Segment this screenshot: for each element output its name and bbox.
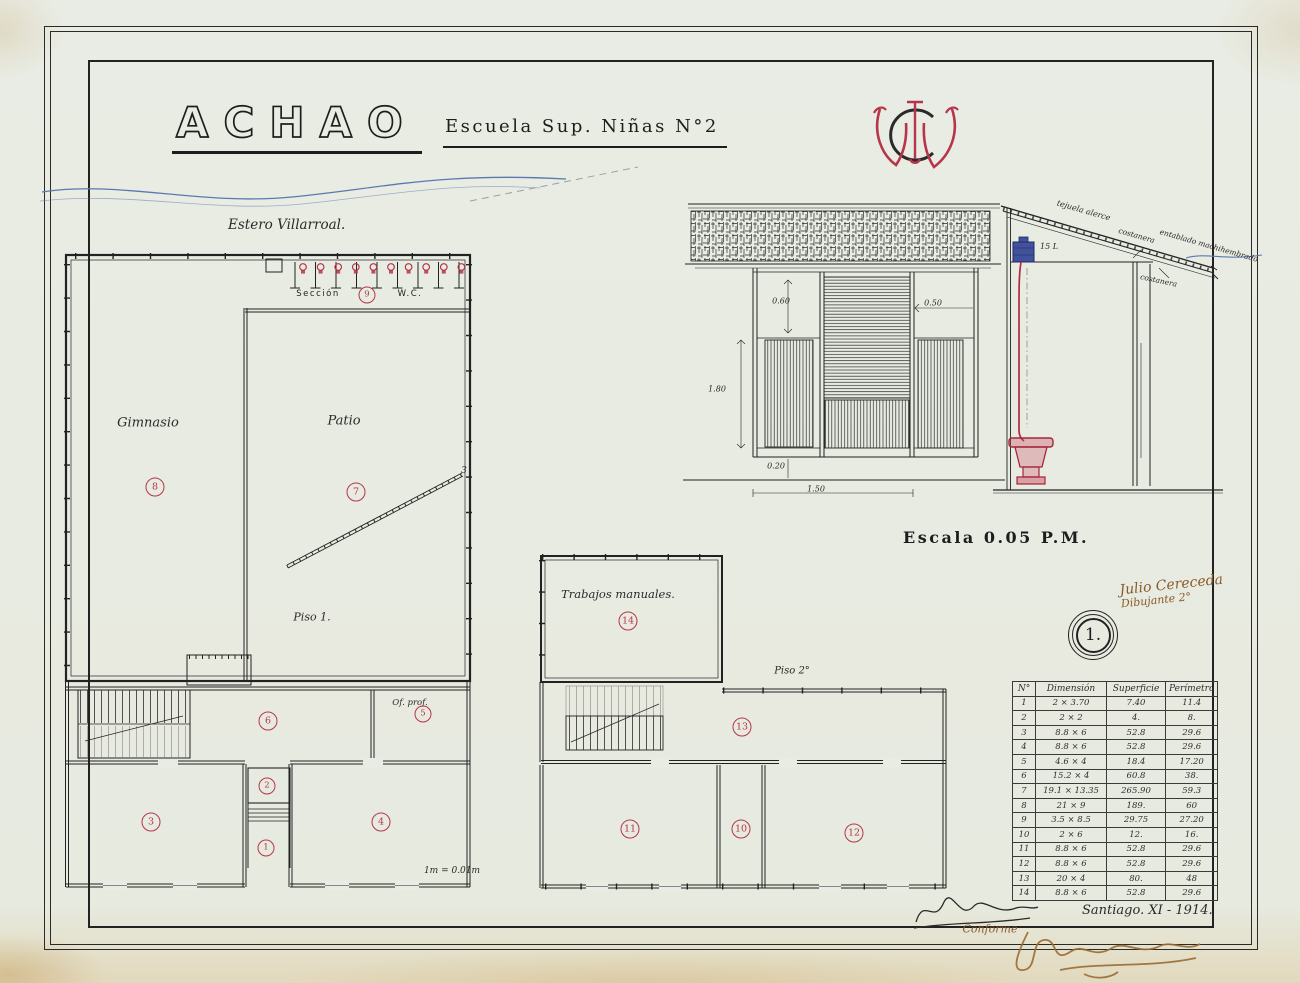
river-label: Estero Villarroal. (228, 217, 345, 233)
table-cell: 12 (1013, 857, 1036, 872)
table-cell: 15.2 × 4 (1036, 769, 1107, 784)
table-row: 148.8 × 652.829.6 (1013, 886, 1218, 901)
table-cell: 8.8 × 6 (1036, 725, 1107, 740)
table-cell: 38. (1166, 769, 1218, 784)
room-number-vestibule: 2 (259, 778, 276, 795)
table-cell: 12. (1107, 827, 1166, 842)
table-header-row: N°DimensiónSuperficiePerímetro (1013, 682, 1218, 697)
wc-section-label: Sección (296, 289, 339, 299)
table-cell: 6 (1013, 769, 1036, 784)
table-cell: 59.3 (1166, 784, 1218, 799)
table-cell: 8 (1013, 798, 1036, 813)
elev-dim-060: 0.60 (772, 297, 790, 306)
room-label-patio: Patio (327, 414, 360, 429)
scale-label: Escala 0.05 P.M. (903, 528, 1089, 547)
wc-monogram-icon (860, 93, 972, 185)
table-cell: 52.8 (1107, 857, 1166, 872)
table-cell: 19.1 × 13.35 (1036, 784, 1107, 799)
table-cell: 52.8 (1107, 842, 1166, 857)
table-cell: 2 × 6 (1036, 827, 1107, 842)
elev-dim-150: 1.50 (807, 485, 825, 494)
section-label-tank: 15 L (1040, 242, 1058, 251)
table-row: 102 × 612.16. (1013, 827, 1218, 842)
table-cell: 8.8 × 6 (1036, 740, 1107, 755)
table-cell: 52.8 (1107, 740, 1166, 755)
room-number-office: 5 (415, 706, 432, 723)
table-cell: 2 (1013, 711, 1036, 726)
floor1-label: Piso 1. (293, 611, 330, 624)
table-cell: 60.8 (1107, 769, 1166, 784)
table-header-cell: Superficie (1107, 682, 1166, 697)
table-row: 93.5 × 8.529.7527.20 (1013, 813, 1218, 828)
table-cell: 11 (1013, 842, 1036, 857)
table-cell: 9 (1013, 813, 1036, 828)
table-row: 54.6 × 418.417.20 (1013, 754, 1218, 769)
elev-dim-050: 0.50 (924, 299, 942, 308)
room-number-gimnasio: 8 (146, 478, 165, 497)
table-cell: 8.8 × 6 (1036, 857, 1107, 872)
room-number-corridor2: 13 (733, 718, 752, 737)
table-cell: 29.6 (1166, 886, 1218, 901)
table-cell: 7.40 (1107, 696, 1166, 711)
plan1-drawing (63, 246, 475, 898)
table-row: 821 × 9189.60 (1013, 798, 1218, 813)
table-row: 719.1 × 13.35265.9059.3 (1013, 784, 1218, 799)
table-cell: 4 (1013, 740, 1036, 755)
room-number-wc: 9 (359, 287, 376, 304)
elev-dim-180: 1.80 (708, 385, 726, 394)
table-cell: 7 (1013, 784, 1036, 799)
table-cell: 29.6 (1166, 842, 1218, 857)
table-row: 118.8 × 652.829.6 (1013, 842, 1218, 857)
table-cell: 4.6 × 4 (1036, 754, 1107, 769)
sheet-number-badge: 1. (1068, 610, 1118, 660)
table-cell: 29.6 (1166, 857, 1218, 872)
table-cell: 8. (1166, 711, 1218, 726)
table-cell: 1 (1013, 696, 1036, 711)
toilet-icons (300, 264, 465, 274)
table-row: 615.2 × 460.838. (1013, 769, 1218, 784)
table-cell: 189. (1107, 798, 1166, 813)
signature-sepia (1000, 912, 1210, 982)
table-cell: 27.20 (1166, 813, 1218, 828)
table-cell: 29.75 (1107, 813, 1166, 828)
table-row: 22 × 24.8. (1013, 711, 1218, 726)
table-cell: 8.8 × 6 (1036, 842, 1107, 857)
room-number-manual-works: 14 (619, 612, 638, 631)
table-cell: 21 × 9 (1036, 798, 1107, 813)
table-cell: 13 (1013, 871, 1036, 886)
area-table: N°DimensiónSuperficiePerímetro 12 × 3.70… (1012, 681, 1218, 901)
wc-label: W.C. (398, 289, 423, 299)
toilet-section-icon (1009, 438, 1053, 484)
room-number-11: 11 (621, 820, 640, 839)
table-row: 48.8 × 652.829.6 (1013, 740, 1218, 755)
table-cell: 11.4 (1166, 696, 1218, 711)
table-cell: 10 (1013, 827, 1036, 842)
table-cell: 2 × 2 (1036, 711, 1107, 726)
table-cell: 3.5 × 8.5 (1036, 813, 1107, 828)
room-number-corridor1: 6 (259, 712, 278, 731)
sheet-subtitle: Escuela Sup. Niñas N°2 (443, 116, 727, 148)
table-cell: 48 (1166, 871, 1218, 886)
room-number-entrance: 1 (258, 840, 275, 857)
sheet-number: 1. (1076, 618, 1111, 653)
table-cell: 29.6 (1166, 740, 1218, 755)
floor2-label: Piso 2° (774, 666, 810, 677)
table-cell: 18.4 (1107, 754, 1166, 769)
table-cell: 17.20 (1166, 754, 1218, 769)
table-header-cell: Dimensión (1036, 682, 1107, 697)
blueprint-sheet: ACHAO Escuela Sup. Niñas N°2 Estero Vill… (0, 0, 1300, 983)
room-label-gimnasio: Gimnasio (117, 416, 179, 431)
table-cell: 20 × 4 (1036, 871, 1107, 886)
table-cell: 16. (1166, 827, 1218, 842)
table-header-cell: N° (1013, 682, 1036, 697)
table-cell: 8.8 × 6 (1036, 886, 1107, 901)
table-cell: 4. (1107, 711, 1166, 726)
table-cell: 60 (1166, 798, 1218, 813)
wc-elevation-drawing (683, 198, 1005, 503)
room-label-manual-works: Trabajos manuales. (561, 587, 675, 601)
table-header-cell: Perímetro (1166, 682, 1218, 697)
room-number-12: 12 (845, 824, 864, 843)
date-label: Santiago. XI - 1914. (1082, 903, 1213, 918)
table-row: 128.8 × 652.829.6 (1013, 857, 1218, 872)
table-cell: 265.90 (1107, 784, 1166, 799)
table-cell: 3 (1013, 725, 1036, 740)
table-cell: 52.8 (1107, 886, 1166, 901)
wc-section-drawing (993, 178, 1263, 498)
table-cell: 52.8 (1107, 725, 1166, 740)
table-row: 38.8 × 652.829.6 (1013, 725, 1218, 740)
elev-dim-020: 0.20 (767, 462, 785, 471)
room-number-classroom-right: 4 (372, 813, 391, 832)
room-number-classroom-left: 3 (142, 813, 161, 832)
diagonal-annotation: 3 (461, 466, 467, 476)
table-cell: 29.6 (1166, 725, 1218, 740)
sheet-title: ACHAO (172, 98, 422, 154)
room-number-patio: 7 (347, 483, 366, 502)
table-cell: 2 × 3.70 (1036, 696, 1107, 711)
table-cell: 80. (1107, 871, 1166, 886)
table-row: 12 × 3.707.4011.4 (1013, 696, 1218, 711)
room-number-10: 10 (732, 820, 751, 839)
table-cell: 5 (1013, 754, 1036, 769)
plan-scale-note: 1m = 0.01m (424, 866, 480, 876)
table-row: 1320 × 480.48 (1013, 871, 1218, 886)
